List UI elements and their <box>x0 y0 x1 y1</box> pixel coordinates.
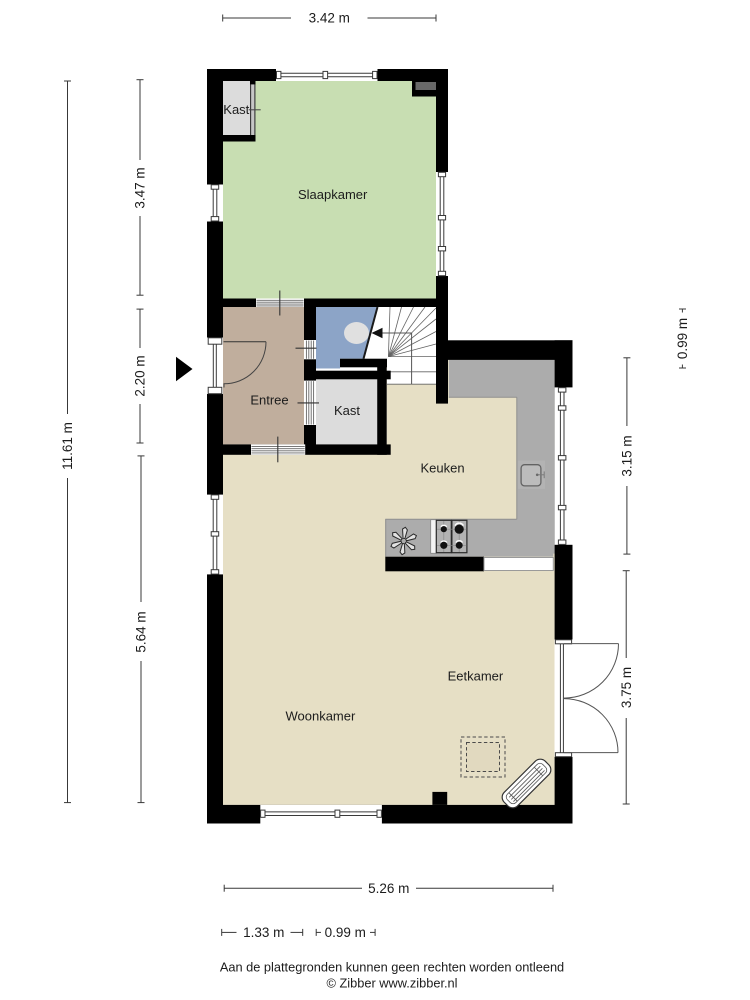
svg-text:3.15 m: 3.15 m <box>620 435 635 476</box>
svg-text:0.99 m: 0.99 m <box>325 925 366 940</box>
svg-text:Kast: Kast <box>334 403 360 418</box>
svg-text:0.99 m: 0.99 m <box>675 318 690 359</box>
svg-text:© Zibber www.zibber.nl: © Zibber www.zibber.nl <box>326 976 457 991</box>
svg-text:Kast: Kast <box>223 102 249 117</box>
svg-text:3.47 m: 3.47 m <box>133 167 148 208</box>
svg-text:Woonkamer: Woonkamer <box>285 709 356 724</box>
svg-text:3.42 m: 3.42 m <box>309 11 350 26</box>
svg-text:Aan de plattegronden kunnen ge: Aan de plattegronden kunnen geen rechten… <box>220 960 564 975</box>
svg-text:2.20 m: 2.20 m <box>133 355 148 396</box>
svg-text:11.61 m: 11.61 m <box>60 422 75 470</box>
svg-text:Entree: Entree <box>250 393 288 408</box>
svg-text:Keuken: Keuken <box>420 460 464 475</box>
svg-text:5.64 m: 5.64 m <box>134 611 149 652</box>
svg-text:Eetkamer: Eetkamer <box>448 669 504 684</box>
svg-text:3.75 m: 3.75 m <box>619 667 634 708</box>
svg-text:1.33 m: 1.33 m <box>243 925 284 940</box>
svg-text:Slaapkamer: Slaapkamer <box>298 187 368 202</box>
svg-text:5.26 m: 5.26 m <box>368 881 409 896</box>
